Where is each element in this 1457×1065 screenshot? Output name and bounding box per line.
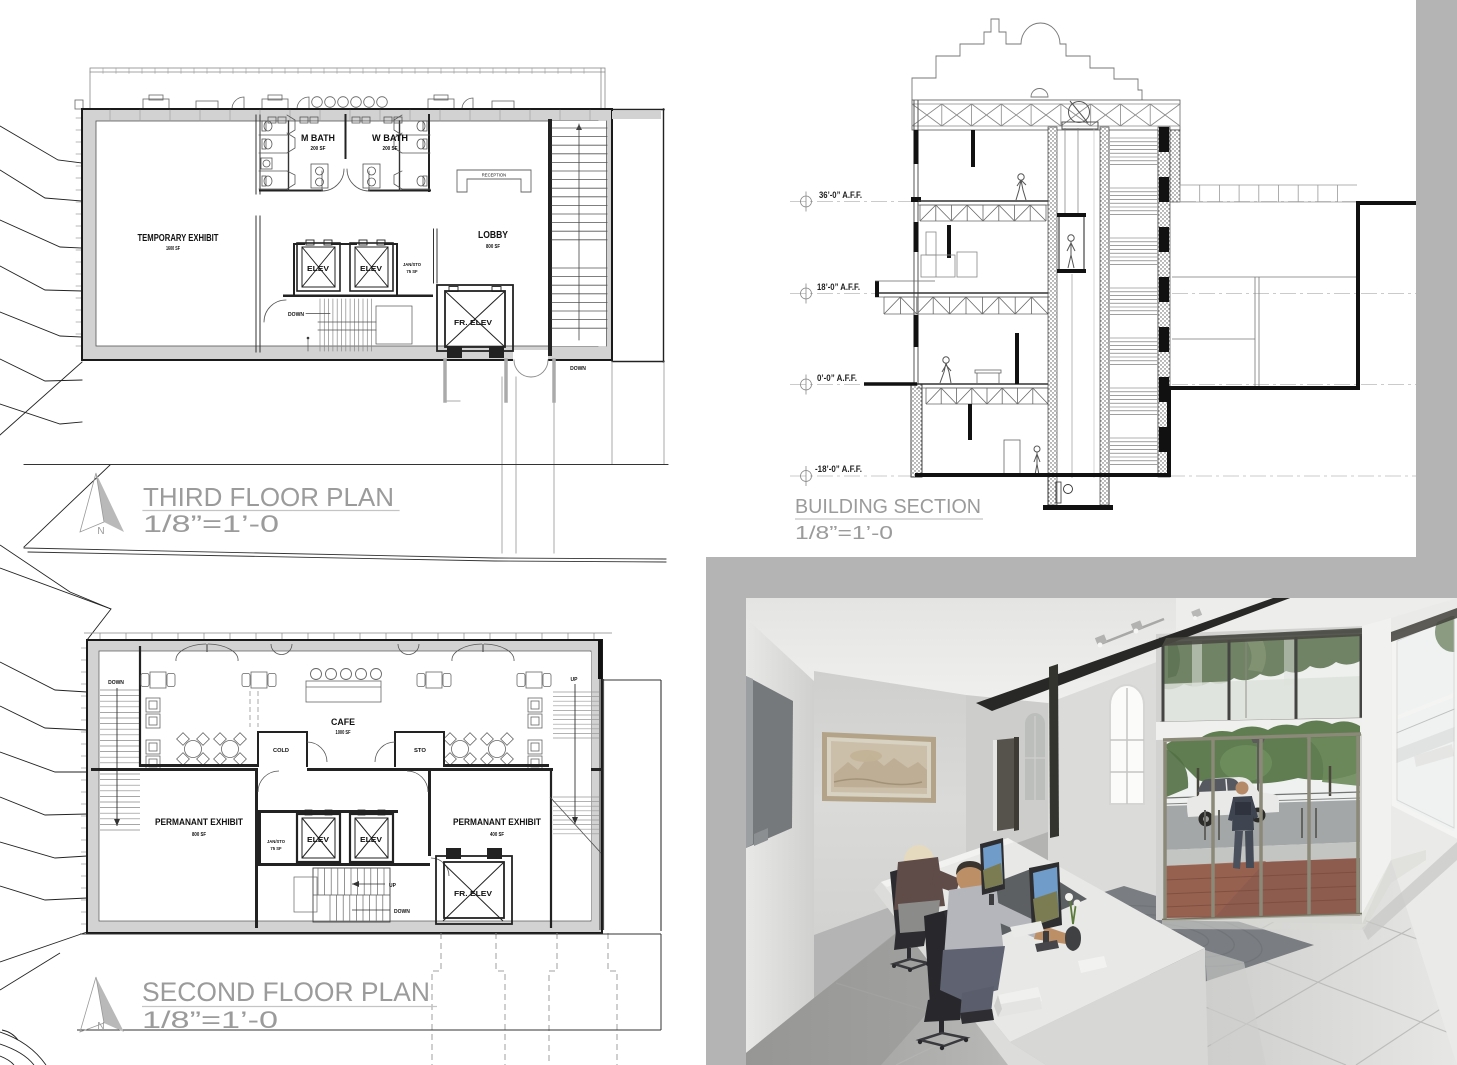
svg-text:BUILDING SECTION: BUILDING SECTION	[795, 496, 981, 518]
svg-text:LOBBY: LOBBY	[478, 230, 508, 241]
svg-text:1000 SF: 1000 SF	[336, 730, 351, 736]
svg-text:-18’-0” A.F.F.: -18’-0” A.F.F.	[815, 464, 862, 474]
svg-text:THIRD FLOOR PLAN: THIRD FLOOR PLAN	[143, 482, 394, 512]
svg-text:18’-0” A.F.F.: 18’-0” A.F.F.	[817, 282, 860, 292]
svg-text:COLD: COLD	[273, 748, 289, 754]
svg-text:TEMPORARY EXHIBIT: TEMPORARY EXHIBIT	[138, 233, 219, 244]
svg-text:800 SF: 800 SF	[192, 832, 206, 838]
svg-text:M BATH: M BATH	[301, 133, 335, 143]
svg-text:400 SF: 400 SF	[490, 832, 504, 838]
svg-text:ELEV: ELEV	[307, 266, 329, 273]
svg-text:ELEV: ELEV	[360, 837, 382, 844]
svg-text:1/8”=1’-0: 1/8”=1’-0	[143, 511, 279, 538]
svg-text:1600 SF: 1600 SF	[166, 246, 180, 252]
svg-text:N: N	[97, 1021, 104, 1032]
svg-text:200 SF: 200 SF	[383, 146, 398, 152]
svg-text:DOWN: DOWN	[570, 366, 586, 372]
svg-text:W BATH: W BATH	[372, 133, 408, 143]
svg-text:PERMANANT EXHIBIT: PERMANANT EXHIBIT	[155, 817, 243, 828]
svg-text:200 SF: 200 SF	[311, 146, 326, 152]
svg-text:N: N	[97, 526, 104, 537]
svg-text:DOWN: DOWN	[394, 909, 410, 915]
svg-text:UP: UP	[389, 883, 397, 889]
svg-text:1/8”=1’-0: 1/8”=1’-0	[142, 1007, 278, 1034]
svg-text:800 SF: 800 SF	[486, 244, 500, 250]
svg-text:SECOND FLOOR PLAN: SECOND FLOOR PLAN	[142, 977, 430, 1007]
svg-text:ELEV: ELEV	[360, 266, 382, 273]
svg-text:DOWN: DOWN	[288, 312, 304, 318]
svg-text:0’-0” A.F.F.: 0’-0” A.F.F.	[817, 373, 857, 383]
svg-text:75 SF: 75 SF	[270, 846, 282, 851]
svg-text:FR. ELEV: FR. ELEV	[454, 891, 492, 898]
svg-text:STO: STO	[414, 748, 427, 754]
svg-text:UP: UP	[571, 677, 579, 683]
svg-text:CAFE: CAFE	[331, 717, 355, 728]
svg-text:RECEPTION: RECEPTION	[482, 173, 506, 178]
svg-text:75 SF: 75 SF	[406, 269, 418, 274]
svg-text:DOWN: DOWN	[108, 680, 124, 686]
svg-text:36’-0” A.F.F.: 36’-0” A.F.F.	[819, 190, 862, 200]
svg-text:JAN/STO: JAN/STO	[403, 262, 422, 267]
svg-text:ELEV: ELEV	[307, 837, 329, 844]
svg-text:1/8”=1’-0: 1/8”=1’-0	[795, 523, 893, 543]
svg-text:FR. ELEV: FR. ELEV	[454, 320, 492, 327]
svg-text:PERMANANT EXHIBIT: PERMANANT EXHIBIT	[453, 817, 541, 828]
svg-text:JAN/STO: JAN/STO	[267, 839, 286, 844]
